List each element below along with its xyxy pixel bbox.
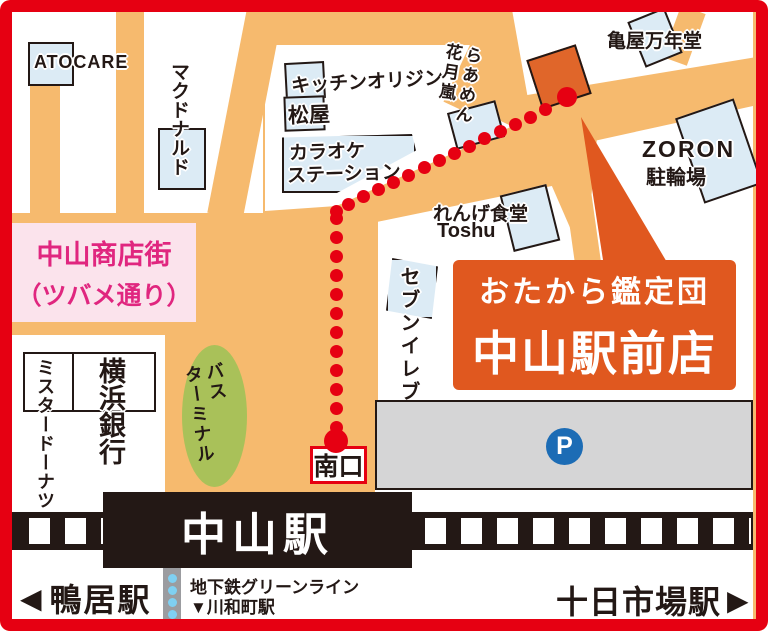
map-canvas: 中山商店街 （ツバメ通り） ターミナル バス ミスタードーナツ 横浜銀行 ATO… <box>0 0 768 631</box>
route-dot <box>524 111 537 124</box>
subway-line-band <box>163 568 181 619</box>
subway-branch-label: ▼川和町駅 <box>190 593 275 618</box>
route-dot <box>330 288 343 301</box>
renge-label-line2: Toshu <box>437 220 496 243</box>
atocare-label: ATOCARE <box>34 52 128 73</box>
zoron-label-line1: ZORON <box>642 136 735 163</box>
route-dot <box>387 176 400 189</box>
subway-dot <box>168 598 177 607</box>
route-dot <box>433 154 446 167</box>
route-dot <box>478 132 491 145</box>
route-dot <box>330 402 343 415</box>
subway-dot <box>168 610 177 619</box>
bus-terminal-area: ターミナル バス <box>182 345 247 487</box>
karaoke-label-line2: ステーション <box>287 157 401 188</box>
parking-icon-letter: P <box>556 432 573 461</box>
store-callout: おたから鑑定団 中山駅前店 <box>453 260 736 390</box>
route-dot <box>330 345 343 358</box>
station-name: 中山駅 <box>181 498 334 563</box>
route-dot <box>330 364 343 377</box>
route-dot <box>330 205 343 218</box>
bus-terminal-col-right: バス <box>204 361 228 407</box>
route-end-marker <box>557 87 577 107</box>
route-dot <box>539 103 552 116</box>
route-dot <box>418 161 431 174</box>
route-start-marker <box>324 429 348 453</box>
matsuya-label: 松屋 <box>287 98 330 129</box>
bus-terminal-label: ターミナル バス <box>183 361 236 467</box>
route-dot <box>402 169 415 182</box>
tokaichiba-station-label: 十日市場駅 <box>556 577 721 623</box>
strip-below-parking <box>375 488 753 512</box>
route-dot <box>330 269 343 282</box>
route-dot <box>330 231 343 244</box>
route-dot <box>330 383 343 396</box>
store-callout-line1: おたから鑑定団 <box>479 267 710 311</box>
station-box: 中山駅 <box>103 492 412 568</box>
parking-icon: P <box>546 428 583 465</box>
store-callout-line2: 中山駅前店 <box>472 315 717 384</box>
left-arrow-icon: ◀ <box>20 582 42 615</box>
route-dot <box>463 140 476 153</box>
kameya-label: 亀屋万年堂 <box>607 26 702 53</box>
route-dot <box>330 307 343 320</box>
route-dot <box>342 198 355 211</box>
route-dot <box>372 183 385 196</box>
shotengai-line1: 中山商店街 <box>37 233 172 272</box>
kamoi-station-label: 鴨居駅 <box>50 575 152 621</box>
road-vertical-2 <box>116 12 144 213</box>
route-dot <box>330 250 343 263</box>
road-vertical-1 <box>30 85 60 213</box>
subway-dot <box>168 586 177 595</box>
route-dot <box>509 118 522 131</box>
route-dot <box>357 190 370 203</box>
kamoi-station-group: ◀ 鴨居駅 <box>20 575 152 621</box>
subway-dot <box>168 574 177 583</box>
mister-donut-label: ミスタードーナツ <box>36 358 54 522</box>
route-dot <box>494 125 507 138</box>
shotengai-panel: 中山商店街 （ツバメ通り） <box>12 223 196 322</box>
zoron-label-line2: 駐輪場 <box>646 161 706 190</box>
route-dot <box>330 326 343 339</box>
route-dot <box>448 147 461 160</box>
yokohama-bank-label: 横浜銀行 <box>96 357 123 467</box>
mcdonalds-label: マクドナルド <box>169 62 188 188</box>
tokaichiba-station-group: 十日市場駅 ▶ <box>556 577 749 623</box>
right-arrow-icon: ▶ <box>727 584 749 617</box>
shotengai-line2: （ツバメ通り） <box>16 276 191 312</box>
